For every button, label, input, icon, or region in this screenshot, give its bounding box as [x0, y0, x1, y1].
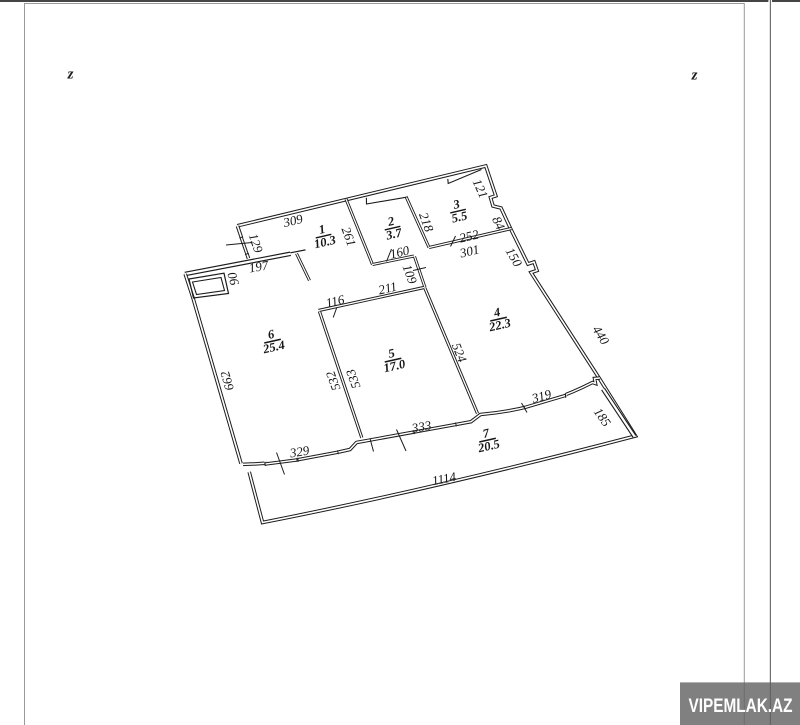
svg-text:z: z [691, 68, 698, 84]
svg-text:z: z [67, 67, 74, 83]
svg-text:VIPEMLAK.AZ: VIPEMLAK.AZ [689, 696, 793, 717]
